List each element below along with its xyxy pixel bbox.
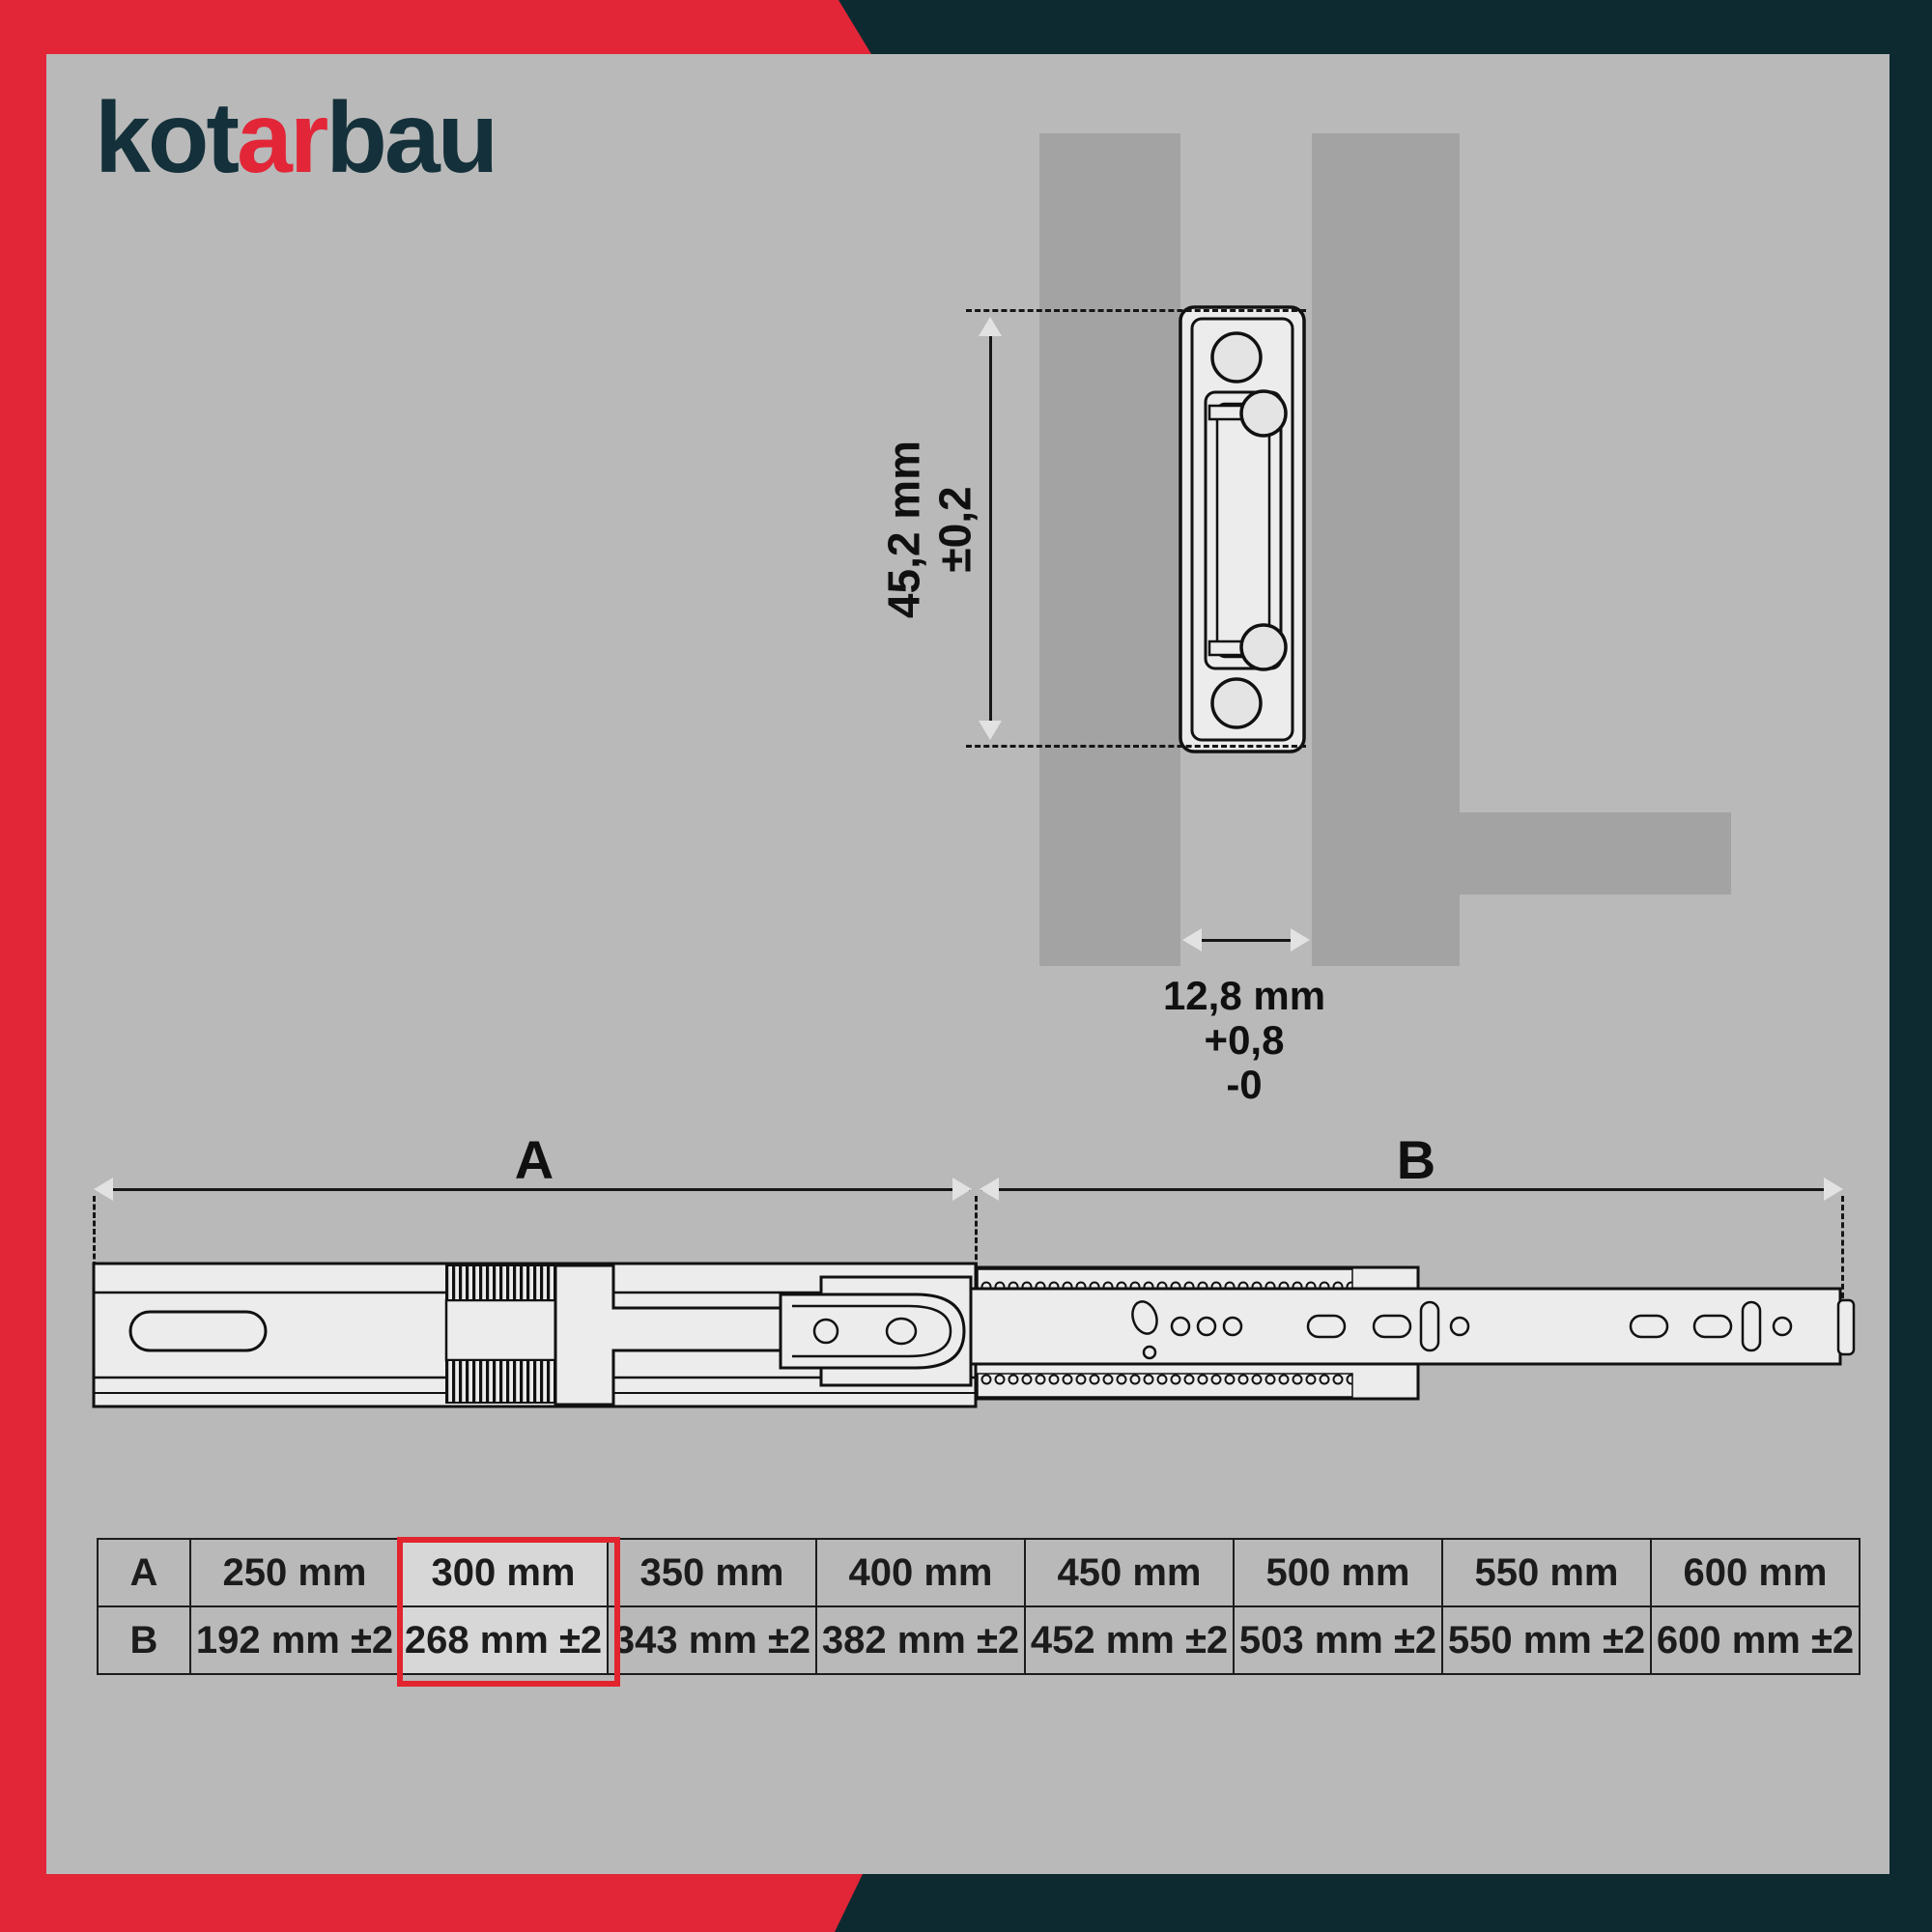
ball-retainer-bottom xyxy=(978,1374,1352,1397)
arrowhead-right-icon xyxy=(1291,928,1310,952)
row-a-header: A xyxy=(99,1540,191,1607)
height-dimension-label: 45,2 mm±0,2 xyxy=(879,440,982,618)
drawer-member xyxy=(855,1289,1840,1364)
size-table: A 250 mm 300 mm 350 mm 400 mm 450 mm 500… xyxy=(97,1538,1861,1675)
arrowhead-down-icon xyxy=(979,721,1002,740)
table-cell-a: 350 mm xyxy=(609,1540,817,1607)
slide-side-view-drawing xyxy=(87,1252,1864,1445)
arrowhead-a-right-icon xyxy=(952,1178,972,1201)
ball-bearing-lower xyxy=(1241,625,1286,669)
arrowhead-a-left-icon xyxy=(94,1178,113,1201)
arrowhead-up-icon xyxy=(979,317,1002,336)
table-cell-b: 343 mm ±2 xyxy=(609,1607,817,1675)
table-cell-b: 600 mm ±2 xyxy=(1652,1607,1861,1675)
dash-line-top xyxy=(966,309,1306,312)
table-cell-a: 450 mm xyxy=(1026,1540,1235,1607)
table-cell-a: 250 mm xyxy=(191,1540,400,1607)
logo-part-kot: kot xyxy=(95,82,237,194)
dimension-a-label: A xyxy=(515,1128,554,1191)
table-cell-b-highlighted: 268 mm ±2 xyxy=(400,1607,609,1675)
table-cell-a: 500 mm xyxy=(1235,1540,1443,1607)
logo-part-bau: bau xyxy=(326,82,496,194)
drawer-bottom-arm xyxy=(1460,812,1731,895)
table-cell-a: 550 mm xyxy=(1443,1540,1652,1607)
arrowhead-b-left-icon xyxy=(980,1178,999,1201)
dash-line-bottom xyxy=(966,745,1306,748)
table-cell-a: 400 mm xyxy=(817,1540,1026,1607)
ball-bearing-upper xyxy=(1241,391,1286,436)
table-cell-a-highlighted: 300 mm xyxy=(400,1540,609,1607)
dimension-b-line xyxy=(981,1188,1837,1191)
dimension-b-label: B xyxy=(1397,1128,1435,1191)
slide-cross-section-drawing xyxy=(1177,303,1320,757)
arrowhead-left-icon xyxy=(1182,928,1202,952)
kotarbau-logo: kotarbau xyxy=(95,81,496,196)
damper-hatch-top xyxy=(446,1265,555,1300)
dimension-a-line xyxy=(99,1188,970,1191)
damper-hatch-bottom xyxy=(446,1360,555,1403)
gap-dimension-line xyxy=(1188,939,1304,942)
height-dimension-line xyxy=(989,321,992,736)
product-diagram-poster: kotarbau 45,2 mm±0,2 12,8 mm+0,8-0 A B xyxy=(0,0,1932,1932)
drawer-panel-right xyxy=(1312,133,1460,966)
table-cell-b: 550 mm ±2 xyxy=(1443,1607,1652,1675)
table-cell-b: 382 mm ±2 xyxy=(817,1607,1026,1675)
table-cell-b: 192 mm ±2 xyxy=(191,1607,400,1675)
table-cell-a: 600 mm xyxy=(1652,1540,1861,1607)
table-cell-b: 452 mm ±2 xyxy=(1026,1607,1235,1675)
row-b-header: B xyxy=(99,1607,191,1675)
mounting-slot-hole xyxy=(130,1312,266,1350)
ball-bearing-bottom xyxy=(1212,679,1261,727)
ball-bearing-top xyxy=(1212,333,1261,382)
gap-dimension-label: 12,8 mm+0,8-0 xyxy=(1163,974,1325,1108)
arrowhead-b-right-icon xyxy=(1824,1178,1843,1201)
logo-part-ar: ar xyxy=(237,82,326,194)
end-cap xyxy=(1838,1300,1854,1354)
table-cell-b: 503 mm ±2 xyxy=(1235,1607,1443,1675)
cabinet-panel-left xyxy=(1039,133,1180,966)
